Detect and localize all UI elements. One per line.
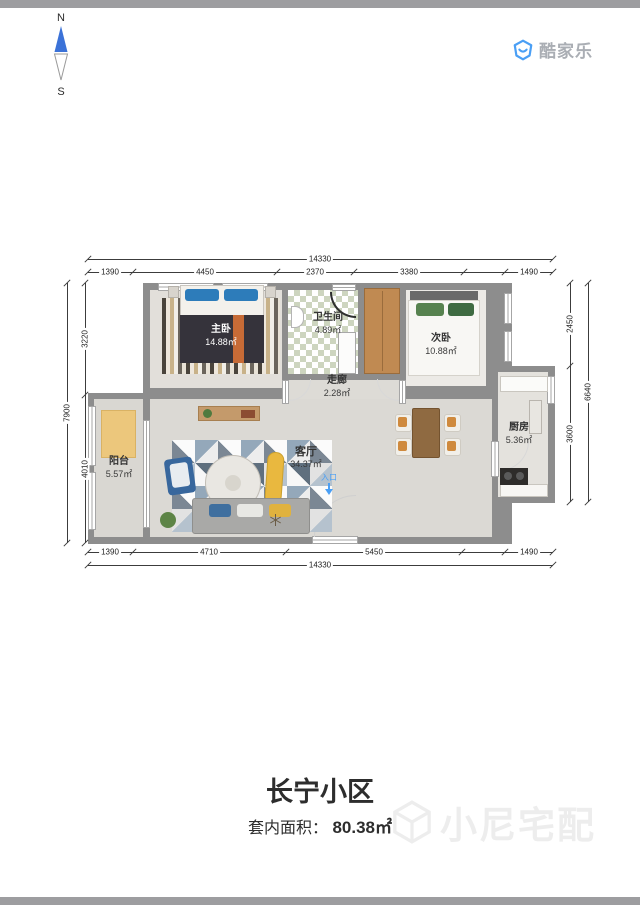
- sofa: [192, 498, 310, 534]
- bath-door-opening: [332, 284, 356, 291]
- dining-chair: [444, 414, 461, 432]
- master-area: 14.88㎡: [205, 336, 237, 348]
- dim-right-total: 6640: [584, 381, 593, 403]
- nightstand-left: [168, 286, 179, 298]
- chaise: [264, 451, 285, 504]
- floor-plant: [160, 512, 176, 528]
- area-line: 套内面积： 80.38㎡: [0, 813, 640, 838]
- dim-left-seg: 3220: [81, 328, 90, 350]
- balcony-name: 阳台: [106, 456, 133, 468]
- wardrobe-divider: [382, 291, 383, 371]
- dim-bottom-total: 14330: [307, 561, 333, 570]
- chair-seat: [447, 441, 456, 451]
- dim-bottom-seg: 5450: [363, 548, 385, 557]
- dim-top-seg: 3380: [398, 268, 420, 277]
- dim-top-seg: 2370: [304, 268, 326, 277]
- entrance-label: 入口: [321, 473, 337, 482]
- floorplan-page: N S 酷家乐: [0, 0, 640, 905]
- stove: [500, 468, 528, 485]
- area-value: 80.38㎡: [332, 818, 392, 837]
- wardrobe: [364, 288, 400, 374]
- dim-tick: [566, 498, 573, 505]
- chair-seat: [398, 441, 407, 451]
- nightstand-right: [265, 286, 276, 298]
- community-title: 长宁小区: [0, 770, 640, 809]
- dim-left-total: 7900: [63, 402, 72, 424]
- master-name: 主卧: [205, 324, 237, 336]
- burner: [516, 472, 524, 480]
- armchair-cushion: [169, 462, 190, 488]
- entrance-marker: 入口: [321, 473, 337, 495]
- bed2-name: 次卧: [425, 333, 457, 345]
- dining-chair: [395, 414, 412, 432]
- dim-tick: [549, 268, 556, 275]
- dining-chair: [444, 438, 461, 456]
- dim-tick: [63, 539, 70, 546]
- dim-top-seg: 4450: [194, 268, 216, 277]
- living-area: 34.37㎡: [290, 458, 322, 470]
- dim-top-total: 14330: [307, 255, 333, 264]
- dim-left-seg: 4010: [81, 458, 90, 480]
- shower: [338, 332, 356, 374]
- dim-top-seg: 1490: [518, 268, 540, 277]
- dim-line-left-segments: [85, 283, 86, 543]
- brand-name: 酷家乐: [539, 37, 593, 62]
- bed2-window-2: [504, 331, 512, 362]
- dim-tick: [549, 255, 556, 262]
- dim-right-seg: 2450: [566, 313, 575, 335]
- dining-chair: [395, 438, 412, 456]
- bed2-area: 10.88㎡: [425, 345, 457, 357]
- kitchen-area: 5.36㎡: [506, 434, 533, 446]
- master-pillow-1: [185, 289, 219, 301]
- room-label-bed2: 次卧 10.88㎡: [425, 333, 457, 357]
- dim-line-bottom-segments: [88, 552, 553, 553]
- dim-tick: [549, 561, 556, 568]
- bed2-pillow-2: [448, 303, 474, 316]
- area-label: 套内面积：: [248, 820, 328, 837]
- dim-bottom-seg: 1490: [518, 548, 540, 557]
- corridor-name: 走廊: [324, 375, 351, 387]
- balcony-window-2: [88, 472, 96, 530]
- kitchen-door-opening: [491, 441, 499, 477]
- compass-south-label: S: [48, 86, 74, 99]
- bed2-door-opening: [399, 380, 406, 404]
- sofa-pillow-white: [237, 504, 263, 517]
- bath-area: 4.89㎡: [313, 324, 343, 336]
- bed2-headboard: [410, 291, 478, 300]
- balcony-window-1: [88, 406, 96, 466]
- compass-north-label: N: [48, 12, 74, 25]
- floor-lamp: [268, 512, 284, 528]
- burner: [504, 472, 512, 480]
- room-label-corridor: 走廊 2.28㎡: [324, 375, 351, 399]
- corridor-area: 2.28㎡: [324, 387, 351, 399]
- compass-needle-icon: [53, 25, 69, 81]
- kitchen-window: [547, 376, 555, 404]
- bed2-window-1: [504, 293, 512, 324]
- dim-tick: [584, 498, 591, 505]
- room-label-master: 主卧 14.88㎡: [205, 324, 237, 348]
- entry-door-opening: [312, 536, 358, 544]
- chair-seat: [447, 417, 456, 427]
- kitchen-base-counter: [500, 484, 548, 497]
- master-door-opening: [282, 380, 289, 404]
- compass: N S: [48, 12, 74, 99]
- balcony-mat: [101, 410, 136, 458]
- chair-seat: [398, 417, 407, 427]
- room-label-living: 客厅 34.37㎡: [290, 446, 322, 470]
- console-decor: [241, 410, 255, 418]
- entrance-arrowhead-icon: [325, 489, 333, 495]
- dim-top-seg: 1390: [99, 268, 121, 277]
- kitchen-name: 厨房: [506, 422, 533, 434]
- dim-tick: [549, 548, 556, 555]
- tv-console: [198, 406, 260, 421]
- brand-logo: 酷家乐: [512, 37, 593, 62]
- dim-bottom-seg: 1390: [99, 548, 121, 557]
- room-label-kitchen: 厨房 5.36㎡: [506, 422, 533, 446]
- room-label-bath: 卫生间 4.89㎡: [313, 312, 343, 336]
- sofa-pillow-blue: [209, 504, 231, 517]
- bed2-pillow-1: [416, 303, 444, 316]
- coffee-table-decor: [225, 475, 241, 491]
- master-pillow-2: [224, 289, 258, 301]
- dim-right-seg: 3600: [566, 423, 575, 445]
- balcony-area: 5.57㎡: [106, 468, 133, 480]
- armchair: [164, 456, 197, 496]
- room-label-balcony: 阳台 5.57㎡: [106, 456, 133, 480]
- top-bar: [0, 0, 640, 8]
- dining-table: [412, 408, 440, 458]
- kitchen-counter: [500, 376, 548, 392]
- balcony-sliding-door: [143, 420, 150, 528]
- living-name: 客厅: [290, 446, 322, 458]
- dim-bottom-seg: 4710: [198, 548, 220, 557]
- bath-name: 卫生间: [313, 312, 343, 324]
- kujiale-shield-icon: [512, 39, 534, 61]
- bottom-bar: [0, 897, 640, 905]
- console-plant: [203, 409, 212, 418]
